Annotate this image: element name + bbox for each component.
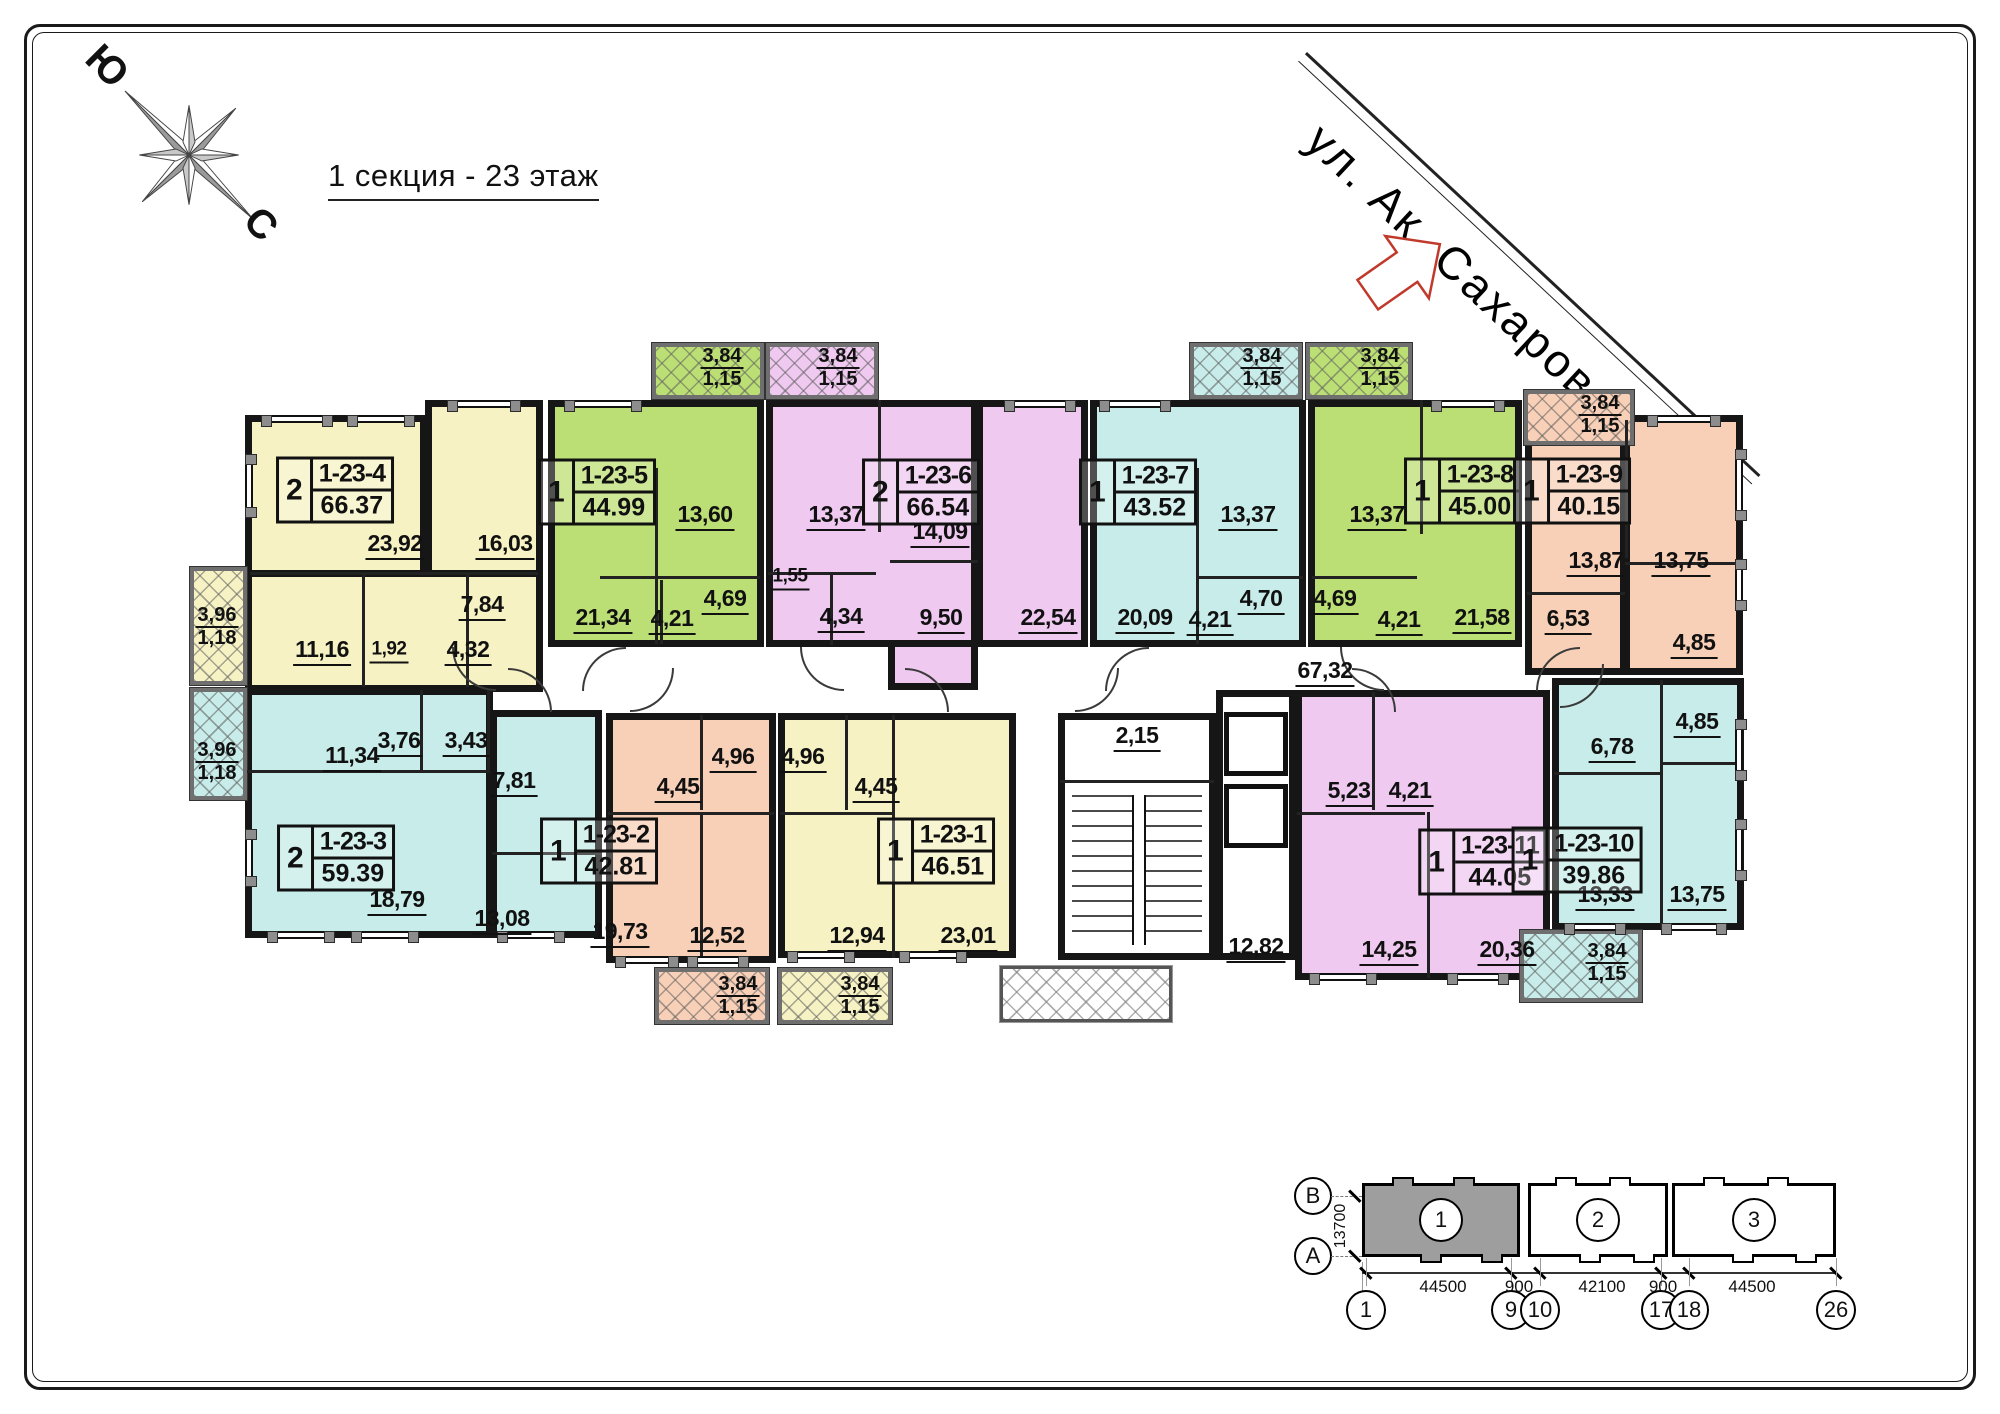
apartment-label-box: 21-23-359.39	[277, 825, 395, 892]
room-area-label: 3,76	[376, 727, 423, 757]
window	[900, 951, 966, 959]
window-cap	[1735, 770, 1747, 781]
balcony-area-label: 3,841,15	[1241, 345, 1284, 391]
interior-wall	[845, 715, 848, 810]
room-area-label: 4,45	[853, 773, 900, 803]
window	[1100, 400, 1170, 408]
room-area-label: 1,55	[771, 566, 810, 591]
interior-wall	[362, 575, 365, 687]
apartment-number: 1-23-8	[1441, 461, 1519, 493]
apartment-area: 45.00	[1441, 493, 1519, 522]
keyplan-extension-line	[1689, 1258, 1690, 1286]
apartment-area: 66.37	[313, 492, 391, 521]
room-area-label: 21,58	[1452, 604, 1511, 634]
apartment-area: 46.51	[914, 853, 992, 882]
window-cap	[1615, 923, 1626, 935]
keyplan-dim-label: 42100	[1578, 1277, 1625, 1297]
apartment-ids: 1-23-359.39	[314, 828, 392, 889]
interior-wall	[1554, 772, 1660, 775]
apartment-number: 1-23-6	[899, 462, 977, 494]
room-area-label: 4,96	[780, 743, 827, 773]
room-area-label: 4,21	[649, 605, 696, 635]
room-area-label: 13,37	[1218, 501, 1277, 531]
room-area-label: 13,87	[1566, 547, 1625, 577]
keyplan-section: 2	[1528, 1183, 1668, 1257]
apartment-rooms-count: 1	[541, 462, 575, 523]
room-area-label: 13,75	[1651, 547, 1710, 577]
room-area-label: 4,96	[710, 743, 757, 773]
window-cap	[447, 400, 458, 412]
window-cap	[787, 951, 798, 963]
interior-wall	[1660, 680, 1663, 928]
elevator-shaft	[1224, 712, 1288, 776]
window-cap	[668, 956, 679, 968]
window-cap	[408, 931, 419, 943]
window-cap	[1710, 415, 1721, 427]
room-area-label: 6,78	[1589, 733, 1636, 763]
apartment-rooms-count: 1	[1516, 461, 1550, 522]
apartment-ids: 1-23-743.52	[1116, 462, 1194, 523]
window-cap	[1647, 415, 1658, 427]
room-area-label: 6,53	[1545, 605, 1592, 635]
window	[1662, 923, 1726, 931]
apartment-label-box: 21-23-466.37	[276, 457, 394, 524]
interior-wall	[1198, 576, 1303, 579]
balcony-area-label: 3,961,18	[196, 739, 239, 785]
balcony-area-label: 3,841,15	[839, 973, 882, 1019]
keyplan-section-notch	[1633, 1254, 1655, 1263]
window-cap	[1735, 559, 1747, 570]
keyplan-column-bubble: 26	[1816, 1290, 1856, 1330]
apartment-ids: 1-23-845.00	[1441, 461, 1519, 522]
room-area-label: 7,84	[459, 591, 506, 621]
room-apt-1-23-9-a	[1525, 415, 1627, 675]
room-area-label: 4,45	[655, 773, 702, 803]
keyplan-section-notch	[1732, 1254, 1754, 1263]
apartment-rooms-count: 2	[280, 828, 314, 889]
window-cap	[267, 931, 278, 943]
room-area-label: 21,34	[573, 604, 632, 634]
window-cap	[738, 956, 749, 968]
interior-wall	[250, 572, 538, 575]
apartment-rooms-count: 1	[1082, 462, 1116, 523]
window-cap	[245, 829, 257, 840]
apartment-rooms-count: 2	[865, 462, 899, 523]
keyplan-section: 3	[1672, 1183, 1836, 1257]
window-cap	[631, 400, 642, 412]
room-apt-1-23-4-c	[245, 570, 543, 692]
interior-wall	[1312, 576, 1417, 579]
keyplan-vertical-dim: 13700	[1332, 1204, 1350, 1249]
window	[348, 415, 414, 423]
window	[1310, 973, 1376, 981]
room-area-label: 11,34	[323, 742, 381, 772]
window-cap	[1564, 923, 1575, 935]
window-cap	[1735, 719, 1747, 730]
keyplan-section-notch	[1392, 1177, 1414, 1186]
room-area-label: 4,69	[1312, 585, 1359, 615]
apartment-area: 39.86	[1548, 862, 1639, 891]
apartment-number: 1-23-10	[1548, 830, 1639, 862]
apartment-ids: 1-23-1039.86	[1548, 830, 1639, 891]
room-area-label: 22,54	[1018, 604, 1077, 634]
keyplan-section-notch	[1767, 1177, 1789, 1186]
elevator-shaft	[1224, 784, 1288, 848]
window-cap	[324, 931, 335, 943]
apartment-number: 1-23-1	[914, 821, 992, 853]
window-cap	[1735, 449, 1747, 460]
room-area-label: 13,37	[1347, 501, 1406, 531]
keyplan-section-notch	[1453, 1177, 1475, 1186]
room-area-label: 4,69	[702, 585, 749, 615]
apartment-label-box: 11-23-743.52	[1079, 459, 1197, 526]
window-cap	[1735, 870, 1747, 881]
apartment-label-box: 11-23-845.00	[1404, 458, 1522, 525]
window-cap	[1735, 510, 1747, 521]
window	[1735, 450, 1743, 520]
window	[352, 931, 418, 939]
apartment-rooms-count: 1	[1515, 830, 1549, 891]
room-area-label: 19,73	[590, 918, 649, 948]
keyplan-section-number: 2	[1576, 1198, 1620, 1242]
keyplan-axis-А: А	[1294, 1237, 1332, 1275]
keyplan-section-notch	[1579, 1254, 1601, 1263]
window	[268, 931, 334, 939]
apartment-area: 59.39	[314, 860, 392, 889]
balcony-area-label: 3,961,18	[196, 604, 239, 650]
interior-wall	[600, 576, 760, 579]
keyplan-dim-label: 44500	[1419, 1277, 1466, 1297]
window-cap	[510, 400, 521, 412]
balcony-area-label: 3,841,15	[717, 973, 760, 1019]
interior-wall	[1297, 812, 1425, 815]
apartment-ids: 1-23-466.37	[313, 460, 391, 521]
room-area-label: 13,75	[1667, 881, 1726, 911]
keyplan-section-notch	[1555, 1177, 1577, 1186]
balcony-area-label: 3,841,15	[701, 345, 744, 391]
apartment-rooms-count: 1	[1421, 832, 1455, 893]
window-cap	[844, 951, 855, 963]
apartment-area: 42.81	[577, 853, 655, 882]
window	[1735, 720, 1743, 780]
keyplan-extension-line	[1540, 1258, 1541, 1286]
interior-wall	[1662, 762, 1742, 765]
window-cap	[1494, 400, 1505, 412]
window-cap	[1735, 600, 1747, 611]
room-area-label: 4,85	[1671, 629, 1718, 659]
window	[1735, 820, 1743, 880]
keyplan-dim-label: 44500	[1728, 1277, 1775, 1297]
apartment-label-box: 11-23-242.81	[540, 818, 658, 885]
room-area-label: 4,21	[1387, 777, 1434, 807]
window-cap	[1309, 973, 1320, 985]
room-area-label: 23,01	[938, 922, 997, 952]
window-cap	[1447, 973, 1458, 985]
apartment-area: 66.54	[899, 494, 977, 523]
window-cap	[404, 415, 415, 427]
window-cap	[1099, 400, 1110, 412]
keyplan-dim-line	[1362, 1272, 1836, 1274]
room-area-label: 16,03	[475, 530, 534, 560]
room-area-label: 20,09	[1115, 604, 1174, 634]
entrance-balcony	[1000, 966, 1172, 1022]
window	[565, 400, 641, 408]
window-cap	[564, 400, 575, 412]
keyplan-axis-В: В	[1294, 1177, 1332, 1215]
keyplan-dim-label: 900	[1505, 1277, 1533, 1297]
apartment-number: 1-23-2	[577, 821, 655, 853]
apartment-rooms-count: 2	[279, 460, 313, 521]
balcony-area-label: 3,841,15	[1579, 392, 1622, 438]
apartment-label-box: 21-23-666.54	[862, 459, 980, 526]
window-cap	[347, 415, 358, 427]
balcony-area-label: 3,841,15	[1586, 940, 1629, 986]
window-cap	[351, 931, 362, 943]
apartment-number: 1-23-5	[575, 462, 653, 494]
room-area-label: 1,92	[370, 639, 409, 664]
keyplan-dim-label: 900	[1649, 1277, 1677, 1297]
room-area-label: 11,16	[293, 636, 351, 666]
window	[688, 956, 748, 964]
window	[245, 830, 253, 886]
balcony-area-label: 3,841,15	[1359, 345, 1402, 391]
room-area-label: 13,60	[675, 501, 734, 531]
window	[448, 400, 520, 408]
interior-wall	[1527, 592, 1625, 595]
interior-wall	[608, 812, 774, 815]
apartment-rooms-count: 1	[880, 821, 914, 882]
keyplan-section-notch	[1609, 1177, 1631, 1186]
window	[1448, 973, 1508, 981]
keyplan-extension-line	[1836, 1258, 1837, 1286]
keyplan-section: 1	[1362, 1183, 1520, 1257]
window	[1565, 923, 1625, 931]
apartment-ids: 1-23-940.15	[1550, 461, 1628, 522]
window-cap	[1065, 400, 1076, 412]
keyplan-section-number: 1	[1419, 1198, 1463, 1242]
apartment-label-box: 11-23-146.51	[877, 818, 995, 885]
window-cap	[899, 951, 910, 963]
room-area-label: 9,50	[918, 604, 965, 634]
room-area-label: 4,85	[1674, 708, 1721, 738]
apartment-number: 1-23-3	[314, 828, 392, 860]
balcony-area-label: 3,841,15	[817, 345, 860, 391]
window	[1648, 415, 1720, 423]
window-cap	[1160, 400, 1171, 412]
window-cap	[245, 454, 257, 465]
window-cap	[1366, 973, 1377, 985]
room-area-label: 13,37	[806, 501, 865, 531]
window-cap	[1431, 400, 1442, 412]
keyplan-section-notch	[1420, 1254, 1442, 1263]
room-area-label: 13,08	[472, 905, 531, 935]
window-cap	[687, 956, 698, 968]
apartment-ids: 1-23-544.99	[575, 462, 653, 523]
interior-wall	[890, 560, 978, 563]
window	[262, 415, 332, 423]
apartment-rooms-count: 1	[1407, 461, 1441, 522]
apartment-ids: 1-23-242.81	[577, 821, 655, 882]
window-cap	[1735, 819, 1747, 830]
window-cap	[956, 951, 967, 963]
window-cap	[615, 956, 626, 968]
apartment-area: 44.99	[575, 494, 653, 523]
room-area-label: 7,81	[491, 767, 538, 797]
window	[1432, 400, 1504, 408]
keyplan-section-notch	[1703, 1177, 1725, 1186]
window-cap	[1661, 923, 1672, 935]
staircase-divider	[1132, 795, 1146, 945]
keyplan-section-number: 3	[1732, 1198, 1776, 1242]
room-area-label: 2,15	[1114, 722, 1161, 752]
apartment-label-box: 11-23-544.99	[538, 459, 656, 526]
apartment-label-box: 11-23-1039.86	[1512, 827, 1643, 894]
apartment-ids: 1-23-666.54	[899, 462, 977, 523]
window	[1005, 400, 1075, 408]
window-cap	[322, 415, 333, 427]
room-area-label: 4,70	[1238, 585, 1285, 615]
window-cap	[1498, 973, 1509, 985]
room-area-label: 12,82	[1226, 933, 1285, 963]
room-area-label: 12,52	[687, 922, 746, 952]
window-cap	[1716, 923, 1727, 935]
room-area-label: 14,25	[1359, 936, 1418, 966]
room-area-label: 4,32	[445, 636, 492, 666]
room-area-label: 4,21	[1187, 606, 1234, 636]
window	[616, 956, 678, 964]
room-area-label: 12,94	[827, 922, 886, 952]
room-area-label: 4,34	[818, 603, 865, 633]
window	[1735, 560, 1743, 610]
apartment-number: 1-23-7	[1116, 462, 1194, 494]
window	[788, 951, 854, 959]
window-cap	[261, 415, 272, 427]
window-cap	[1004, 400, 1015, 412]
window-cap	[245, 507, 257, 518]
keyplan-section-notch	[1795, 1254, 1817, 1263]
keyplan-extension-line	[1366, 1258, 1367, 1286]
apartment-number: 1-23-9	[1550, 461, 1628, 493]
window	[245, 455, 253, 517]
room-area-label: 4,21	[1376, 606, 1423, 636]
interior-wall	[780, 812, 892, 815]
interior-wall	[1060, 780, 1214, 783]
apartment-number: 1-23-4	[313, 460, 391, 492]
room-area-label: 23,92	[365, 530, 424, 560]
room-area-label: 5,23	[1326, 777, 1373, 807]
keyplan-section-notch	[1481, 1254, 1503, 1263]
keyplan-column-bubble: 1	[1346, 1290, 1386, 1330]
apartment-rooms-count: 1	[543, 821, 577, 882]
staircase	[1072, 795, 1202, 945]
room-area-label: 67,32	[1295, 657, 1354, 687]
window-cap	[245, 876, 257, 887]
room-area-label: 20,36	[1477, 936, 1536, 966]
room-area-label: 3,43	[443, 727, 490, 757]
apartment-area: 40.15	[1550, 493, 1628, 522]
window-cap	[554, 931, 565, 943]
apartment-area: 43.52	[1116, 494, 1194, 523]
apartment-label-box: 11-23-940.15	[1513, 458, 1631, 525]
apartment-ids: 1-23-146.51	[914, 821, 992, 882]
